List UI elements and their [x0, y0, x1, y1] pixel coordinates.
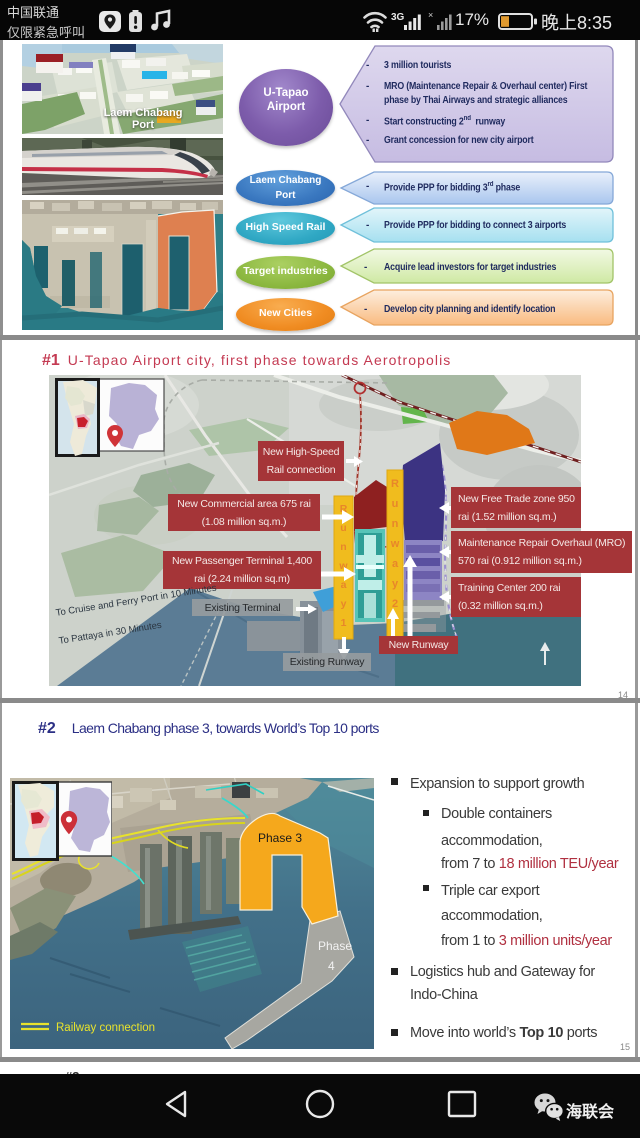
svg-text:3G: 3G [391, 12, 405, 23]
svg-text:a: a [341, 579, 347, 591]
svg-text:y: y [392, 578, 399, 590]
svg-text:4: 4 [328, 959, 335, 973]
svg-text:n: n [392, 518, 399, 530]
svg-text:y: y [341, 598, 347, 610]
svg-text:u: u [340, 522, 346, 534]
svg-text:2: 2 [392, 598, 398, 610]
svg-text:a: a [392, 558, 399, 570]
svg-text:n: n [340, 541, 346, 553]
svg-text:Phase 3: Phase 3 [258, 831, 302, 845]
svg-text:1: 1 [341, 617, 347, 629]
svg-text:Railway connection: Railway connection [56, 1022, 155, 1034]
svg-text:R: R [391, 478, 399, 490]
svg-text:×: × [428, 10, 433, 20]
svg-text:u: u [392, 498, 399, 510]
svg-text:Phase: Phase [318, 939, 352, 953]
svg-text:w: w [390, 538, 400, 550]
